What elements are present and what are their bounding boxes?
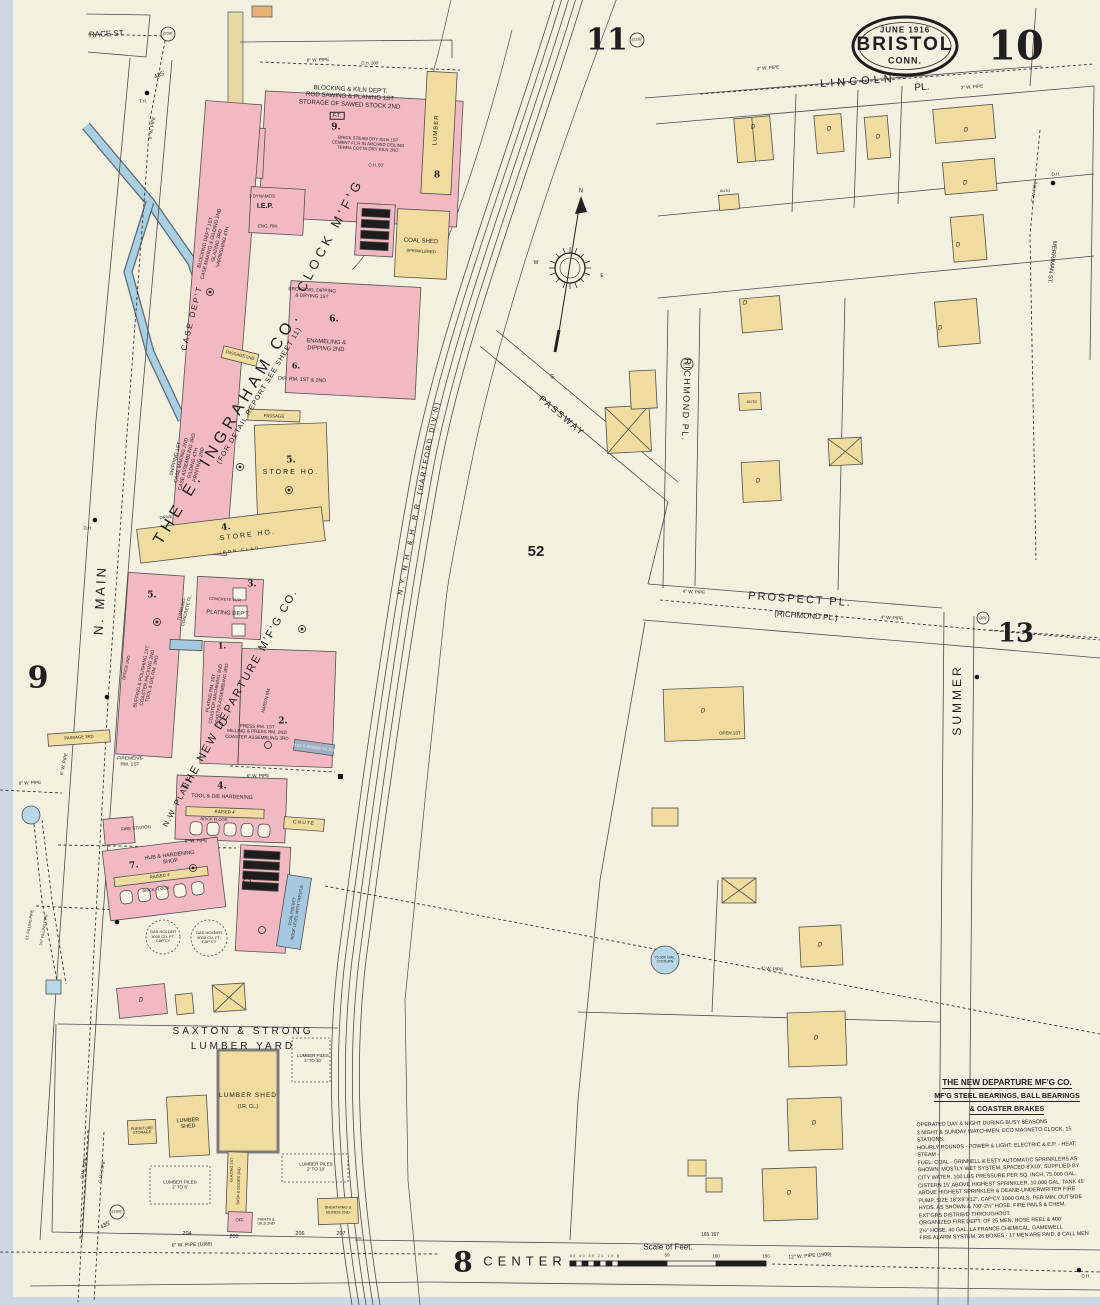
building-3-plating (194, 576, 263, 639)
note-title-2: MF'G STEEL BEARINGS, BALL BEARINGS (918, 1091, 1096, 1104)
scan-edge-left (0, 0, 13, 1305)
sanborn-map-sheet: 10 11 9 13 8 JUNE 1916 BRISTOL CONN. 52 … (0, 0, 1100, 1305)
new-departure-note: THE NEW DEPARTURE MF'G CO. MF'G STEEL BE… (918, 1078, 1096, 1241)
cistern (651, 946, 679, 974)
note-title-1: THE NEW DEPARTURE MF'G CO. (918, 1078, 1096, 1091)
building-lumber-shed-big (218, 1050, 278, 1152)
building-engine-iep (249, 187, 305, 236)
scale-bar (570, 1261, 766, 1266)
building-lumber-shed-small (166, 1095, 209, 1157)
chute (284, 817, 325, 832)
building-enameling (285, 281, 421, 400)
building-lumber-shed-8 (421, 71, 457, 194)
fire-station (103, 817, 135, 846)
note-body: OPERATED DAY & NIGHT DURING BUSY SEASONS… (916, 1118, 1097, 1244)
building-1 (200, 641, 242, 764)
scan-edge-bottom (0, 1297, 1100, 1305)
flume (228, 12, 243, 104)
building-coal-shed (394, 209, 449, 280)
note-title-3: & COASTER BRAKES (918, 1104, 1096, 1117)
